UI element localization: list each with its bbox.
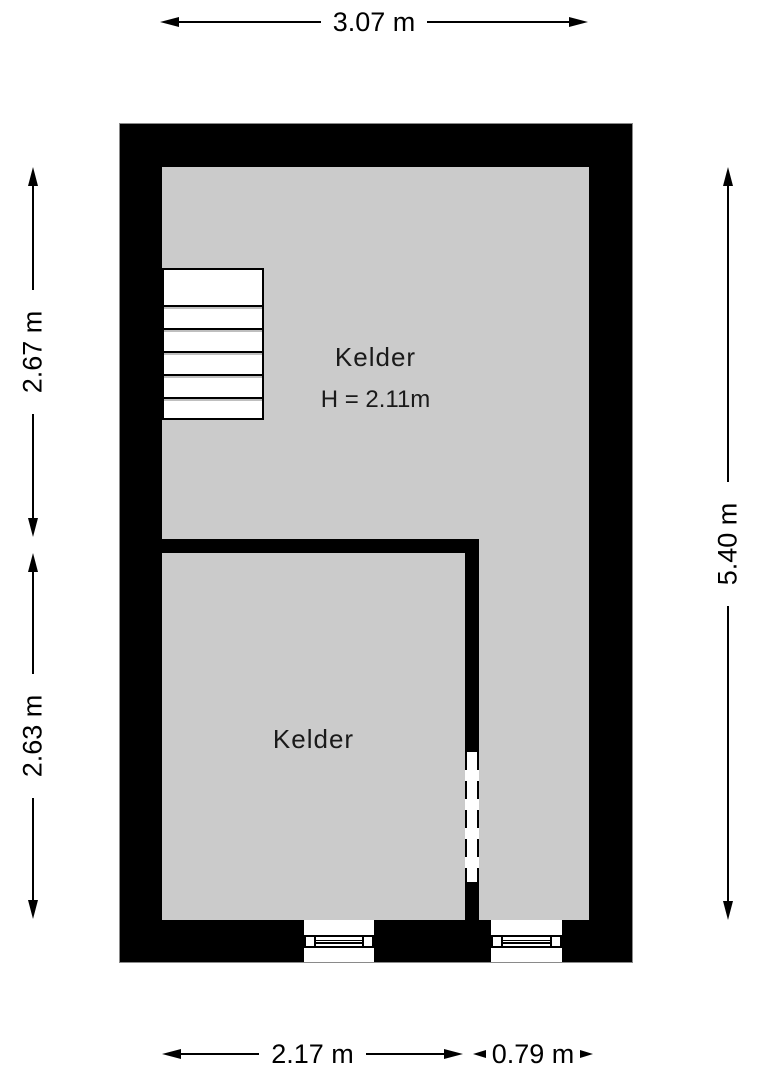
dimension-line xyxy=(727,184,729,482)
dimension-left-lower-label: 2.63 m xyxy=(18,695,49,778)
dimension-line xyxy=(32,570,34,674)
window-glass-line xyxy=(316,940,362,942)
dimension-left-lower: 2.63 m xyxy=(18,553,48,919)
stair-tread-line xyxy=(164,305,262,307)
window-glass-line xyxy=(503,940,550,942)
arrowhead-left-icon xyxy=(160,17,179,27)
dimension-top: 3.07 m xyxy=(160,7,588,37)
window-glass-line xyxy=(316,942,362,944)
dimension-line xyxy=(32,184,34,290)
interior-wall-horizontal xyxy=(162,539,479,553)
arrowhead-down-icon xyxy=(28,518,38,537)
dimension-line xyxy=(32,798,34,902)
dimension-line xyxy=(181,1053,259,1055)
room-label-lower: Kelder xyxy=(162,724,465,755)
dimension-line xyxy=(179,21,321,23)
door-dash-line xyxy=(465,752,467,882)
dimension-left-upper: 2.67 m xyxy=(18,167,48,537)
arrowhead-right-icon xyxy=(580,1050,593,1058)
dimension-left-upper-label: 2.67 m xyxy=(18,311,49,394)
stair-tread-line xyxy=(164,328,262,330)
stair-tread-line xyxy=(164,374,262,376)
dimension-line xyxy=(32,414,34,520)
door-dash-line xyxy=(477,752,479,882)
room-height-note: H = 2.11m xyxy=(162,386,589,414)
arrowhead-right-icon xyxy=(444,1049,463,1059)
dimension-line xyxy=(427,21,569,23)
floor-plan: 3.07 m Kelder H = 2.11m Kelder xyxy=(0,0,763,1080)
dimension-bottom-right-label: 0.79 m xyxy=(486,1039,581,1070)
room-label-upper: Kelder xyxy=(162,342,589,373)
window-left-icon xyxy=(304,935,374,948)
arrowhead-down-icon xyxy=(723,901,733,920)
dimension-right: 5.40 m xyxy=(713,167,743,920)
dimension-right-label: 5.40 m xyxy=(713,502,744,585)
window-right-icon xyxy=(491,935,562,948)
window-glass-line xyxy=(503,942,550,944)
window-jamb xyxy=(362,937,364,946)
arrowhead-left-icon xyxy=(162,1049,181,1059)
arrowhead-right-icon xyxy=(569,17,588,27)
dimension-line xyxy=(727,606,729,904)
dimension-bottom-left: 2.17 m xyxy=(162,1039,463,1069)
dimension-line xyxy=(366,1053,444,1055)
arrowhead-left-icon xyxy=(473,1050,486,1058)
dimension-bottom-left-label: 2.17 m xyxy=(259,1039,366,1070)
arrowhead-down-icon xyxy=(28,900,38,919)
dimension-top-label: 3.07 m xyxy=(321,7,428,38)
dimension-bottom-right: 0.79 m xyxy=(474,1039,592,1069)
door-opening xyxy=(465,752,479,882)
window-jamb xyxy=(550,937,552,946)
